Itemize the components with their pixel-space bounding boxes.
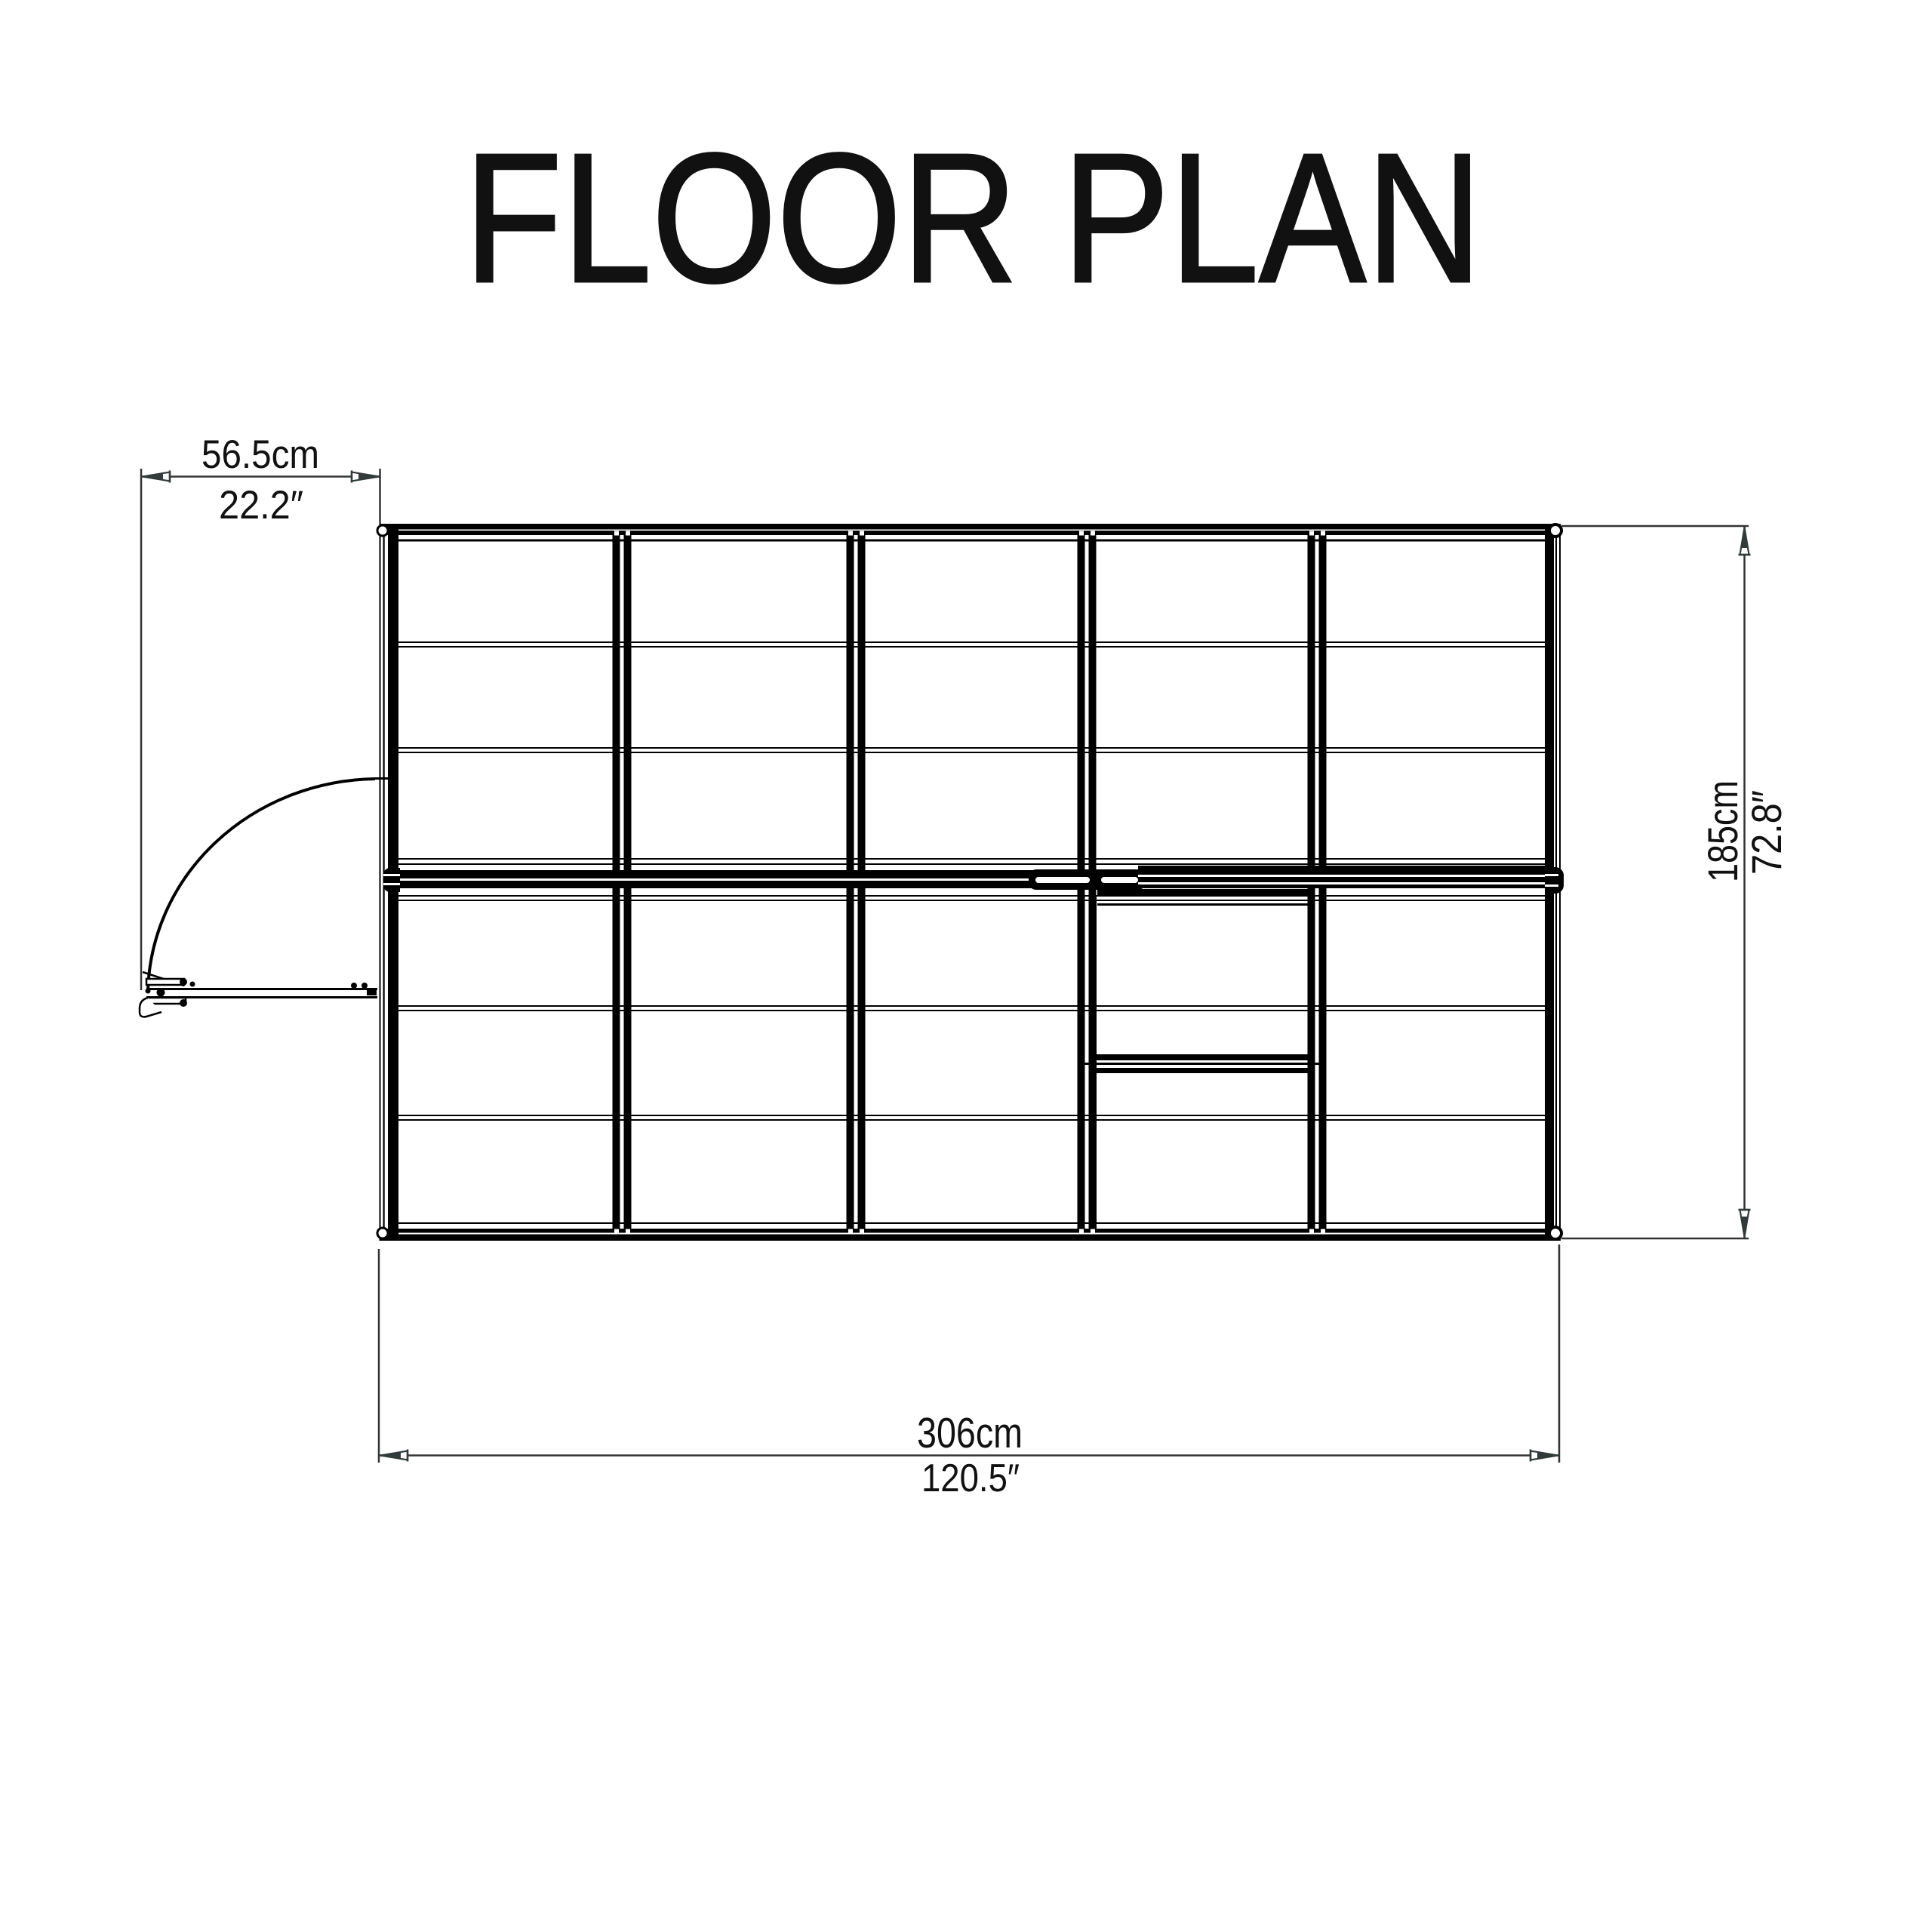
svg-text:306cm: 306cm <box>917 1409 1023 1457</box>
svg-text:185cm: 185cm <box>1699 780 1746 882</box>
svg-text:120.5″: 120.5″ <box>921 1457 1020 1500</box>
svg-text:22.2″: 22.2″ <box>219 483 303 528</box>
svg-text:72.8″: 72.8″ <box>1743 790 1790 875</box>
svg-text:56.5cm: 56.5cm <box>202 432 319 477</box>
svg-text:FLOOR PLAN: FLOOR PLAN <box>464 115 1482 321</box>
